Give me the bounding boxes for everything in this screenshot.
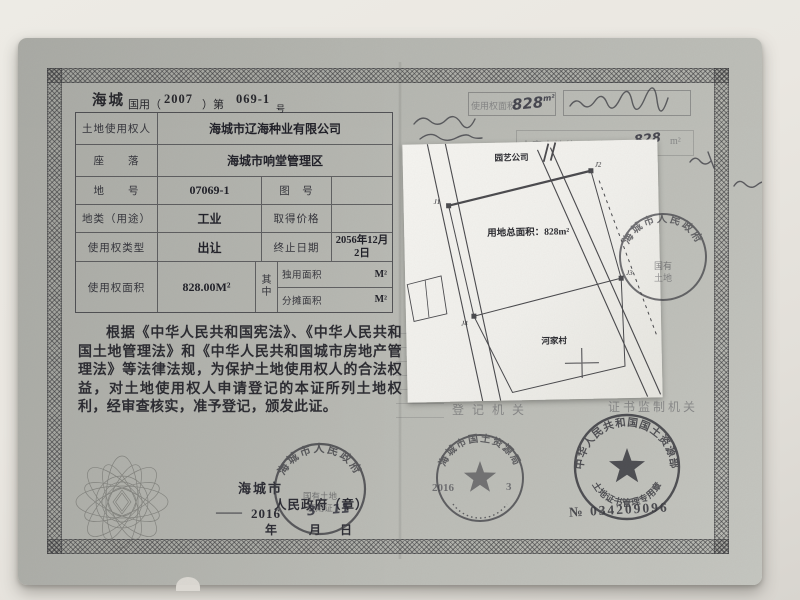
map-point-j4: J4	[461, 319, 468, 327]
seal-arc-text: 海城市人民政府	[274, 441, 365, 477]
certificate-number-header: 海城 国用（ 2007 ）第 069-1 号	[90, 88, 390, 112]
table-row: 座 落 海城市响堂管理区	[76, 145, 392, 177]
row-label: 地 号	[76, 177, 158, 204]
land-holder-value: 海城市辽海种业有限公司	[158, 113, 392, 144]
table-row: 地 号 07069-1 图 号	[76, 177, 392, 205]
no-symbol: №	[569, 504, 585, 520]
form-text: 国用（	[128, 96, 161, 112]
land-use-value: 工业	[158, 205, 262, 232]
legal-statement: 根据《中华人民共和国宪法》、《中华人民共和国土地管理法》和《中华人民共和国城市房…	[78, 325, 402, 418]
seal-arc-text: 海城市人民政府	[620, 212, 706, 246]
row-label2: 取得价格	[262, 205, 332, 232]
price-value	[332, 205, 392, 232]
area-value: 828.00M²	[158, 262, 256, 312]
seal-inner-text: 土地	[654, 272, 672, 283]
serial-number: 034209096	[590, 499, 669, 518]
svg-text:海城市人民政府: 海城市人民政府	[274, 441, 365, 477]
faint-field-box	[563, 90, 691, 116]
among-which-label: 其中	[256, 262, 278, 312]
border-band-top	[47, 68, 729, 83]
city-government-seal: 海城市人民政府 国有土地 使用证	[271, 440, 369, 538]
handwritten-area-value: 828m²	[511, 92, 556, 114]
certificate-page: 海城 国用（ 2007 ）第 069-1 号 土地使用权人 海城市辽海种业有限公…	[18, 38, 762, 585]
location-value: 海城市响堂管理区	[158, 145, 392, 176]
seal-inner-text: 使用证	[307, 503, 333, 513]
right-type-value: 出让	[158, 233, 262, 261]
exclusive-area-row: 独用面积 M²	[278, 262, 392, 288]
registration-authority-label: 登记机关	[452, 401, 532, 418]
faint-area-unit: m²	[670, 136, 681, 147]
certificate-number: 069-1	[236, 92, 270, 107]
faint-field-label: 使用权面积	[471, 99, 516, 112]
land-info-table: 土地使用权人 海城市辽海种业有限公司 座 落 海城市响堂管理区 地 号 0706…	[75, 112, 393, 313]
row-label: 座 落	[76, 145, 158, 176]
map-company-label: 园艺公司	[495, 152, 529, 163]
parcel-number-value: 07069-1	[158, 177, 262, 204]
area-breakdown: 独用面积 M² 分摊面积 M²	[278, 262, 392, 312]
border-band-right	[714, 68, 729, 554]
land-bureau-seal: 海城市国土资源局	[433, 431, 527, 525]
region-name: 海城	[92, 89, 125, 110]
faint-line	[566, 82, 686, 83]
table-row: 土地使用权人 海城市辽海种业有限公司	[76, 113, 392, 145]
expiry-date-value: 2056年12月2日	[332, 233, 392, 261]
handwritten-828: 828	[511, 93, 544, 114]
sub-unit: M²	[340, 262, 392, 287]
bottom-edge-notch	[176, 577, 200, 591]
certificate-year: 2007	[164, 92, 193, 107]
map-point-j1: J1	[433, 198, 440, 206]
form-text-mid: ）第	[202, 96, 224, 112]
table-row: 地类（用途） 工业 取得价格	[76, 205, 392, 233]
sub-unit: M²	[340, 288, 392, 313]
row-label: 使用权面积	[76, 262, 158, 312]
seal-inner-text: 国有土地	[303, 491, 338, 501]
star-icon	[609, 448, 645, 482]
map-total-area-text: 用地总面积：828m²	[486, 225, 569, 239]
table-row: 使用权类型 出让 终止日期 2056年12月2日	[76, 233, 392, 262]
map-village-label: 河家村	[541, 335, 567, 346]
map-number-value	[332, 177, 392, 204]
sub-label: 独用面积	[278, 262, 340, 287]
svg-text:海城市人民政府: 海城市人民政府	[620, 212, 706, 246]
issuer-dash: ——	[216, 504, 242, 520]
shared-area-row: 分摊面积 M²	[278, 288, 392, 313]
map-point-j2: J2	[595, 161, 602, 169]
seal-inner-text: 国有	[654, 260, 672, 271]
row-label: 地类（用途）	[76, 205, 158, 232]
center-fold-line	[398, 62, 402, 559]
guilloche-rosette	[52, 446, 192, 558]
row-label2: 图 号	[262, 177, 332, 204]
row-label2: 终止日期	[262, 233, 332, 261]
table-row-area: 使用权面积 828.00M² 其中 独用面积 M² 分摊面积 M²	[76, 262, 392, 312]
sub-label: 分摊面积	[278, 288, 340, 313]
map-government-seal: 海城市人民政府 国有 土地	[616, 210, 710, 304]
row-label: 使用权类型	[76, 233, 158, 261]
star-icon	[464, 461, 496, 492]
photo-of-certificate: { "header": { "region": "海城", "form_open…	[0, 0, 800, 600]
handwritten-unit: m²	[543, 93, 556, 103]
row-label: 土地使用权人	[76, 113, 158, 144]
